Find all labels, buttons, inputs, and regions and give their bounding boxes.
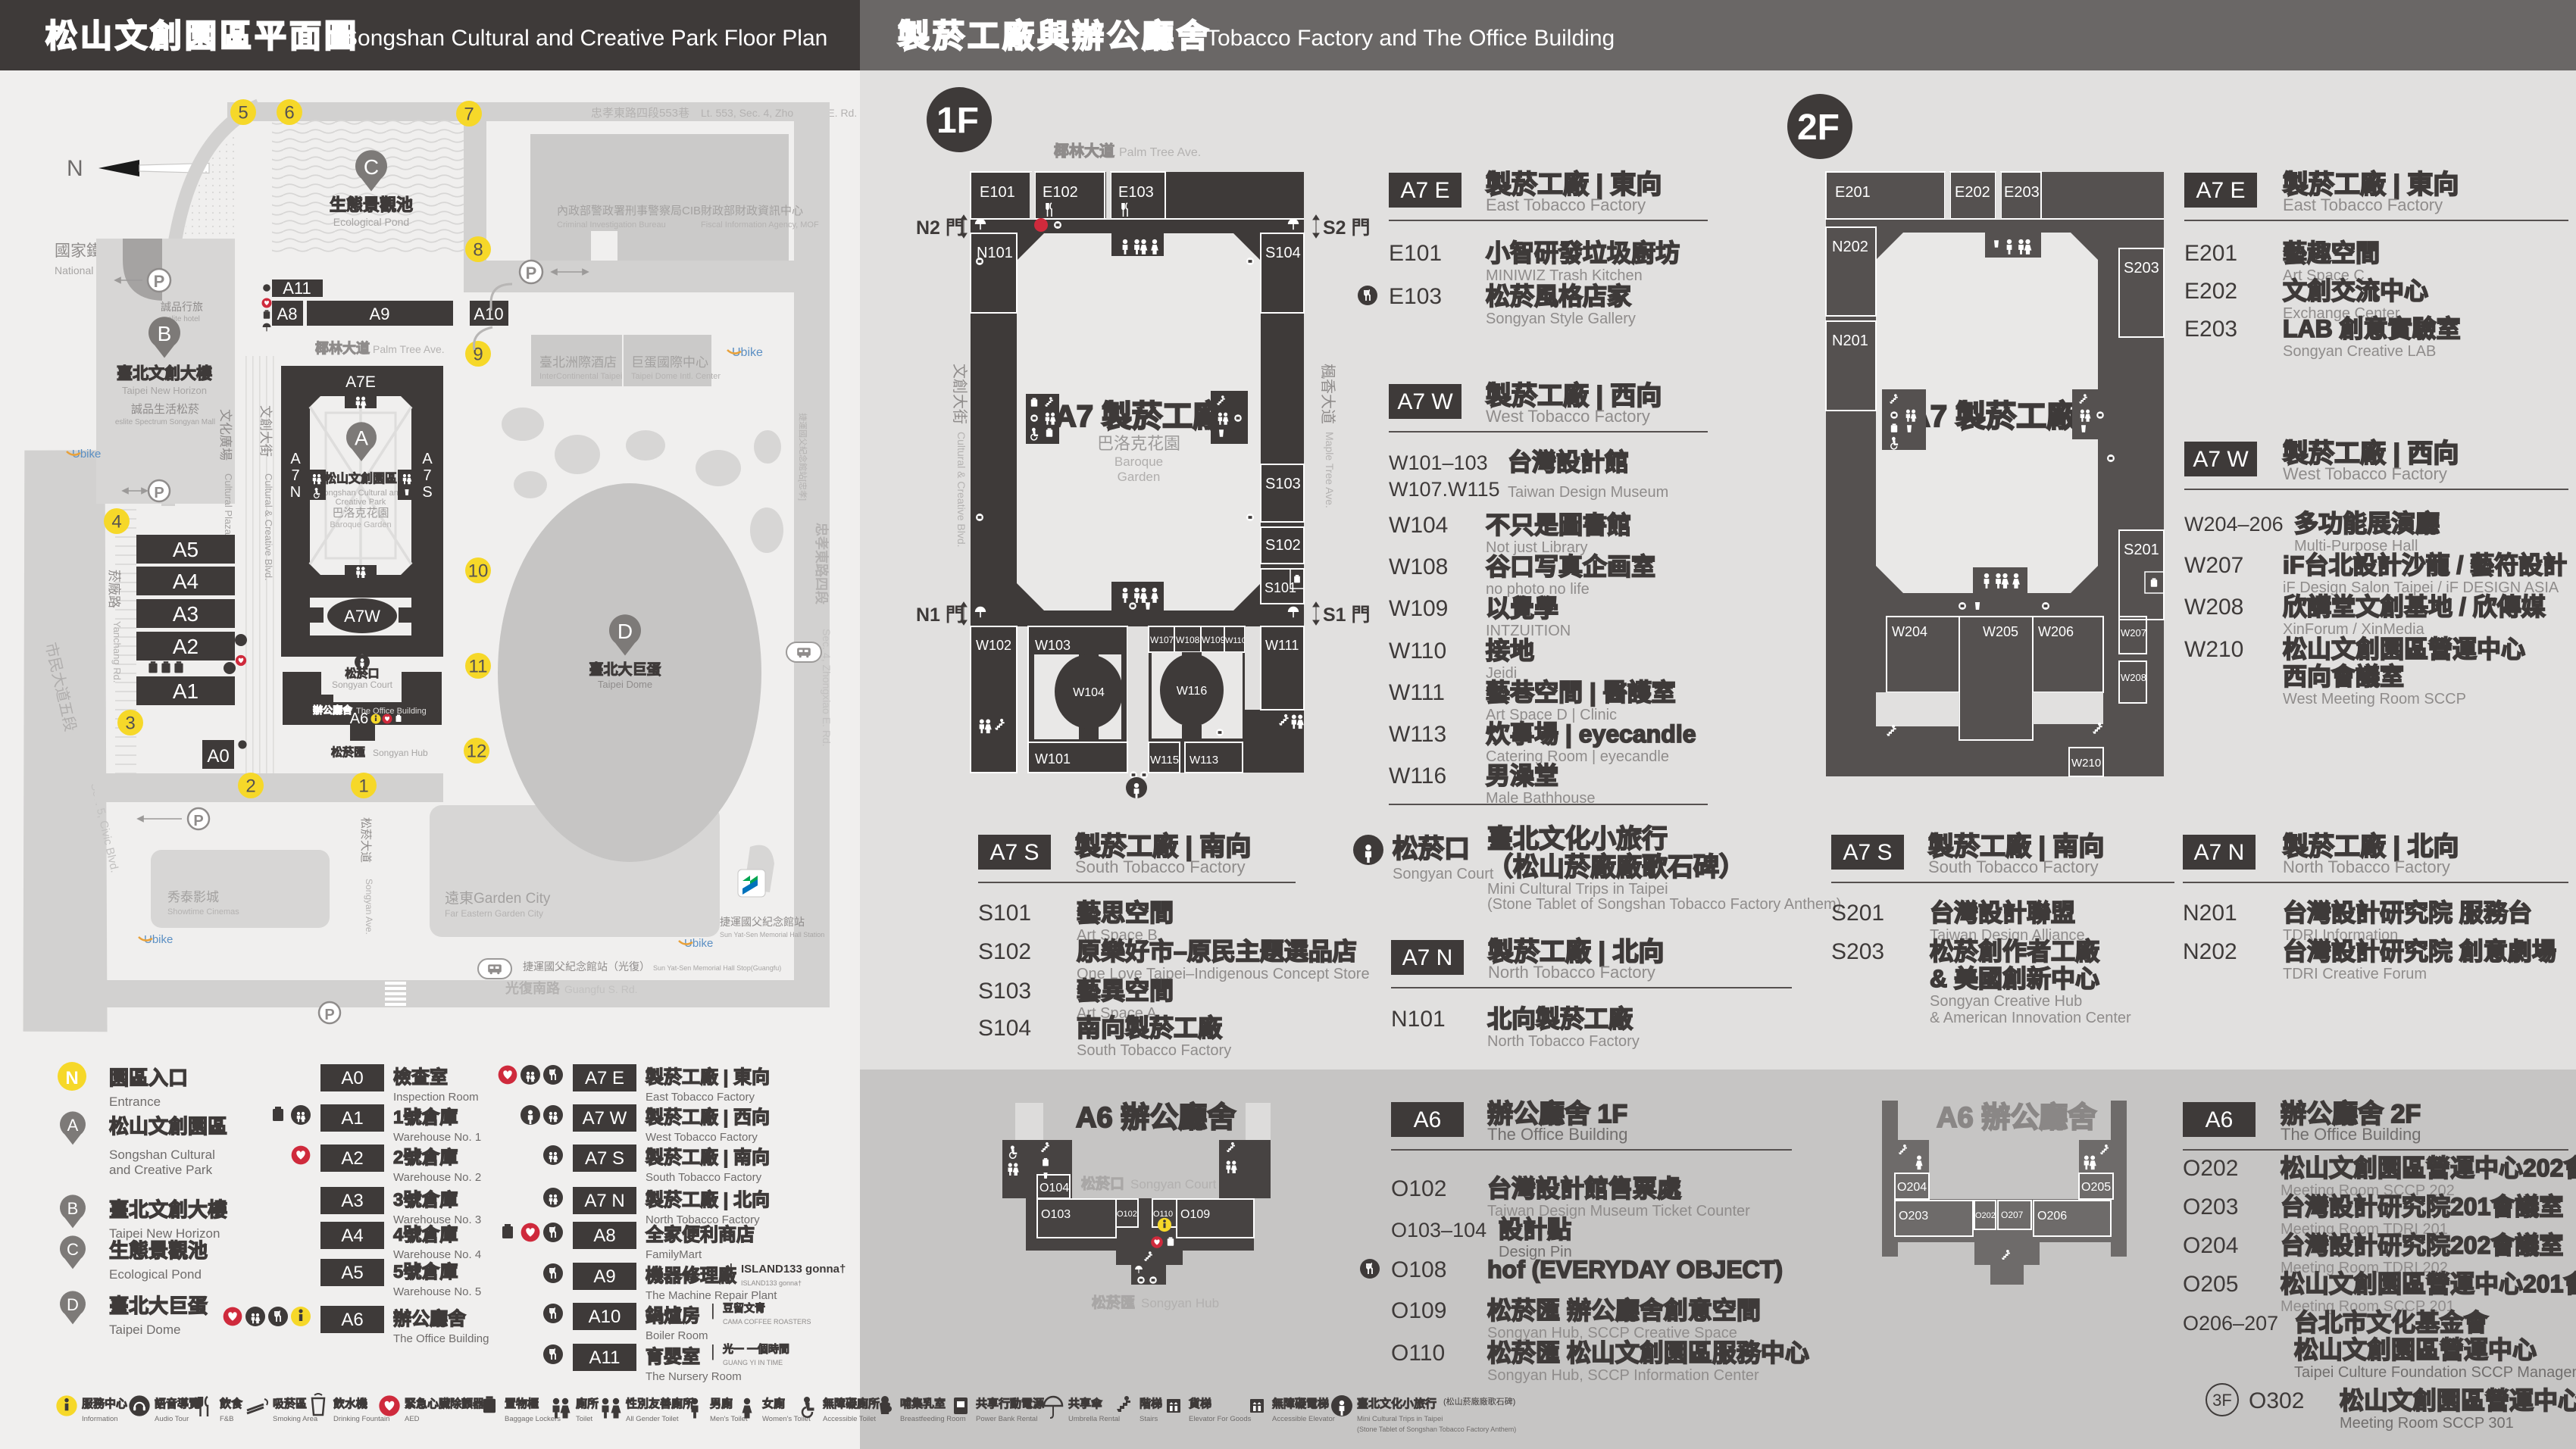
svg-text:台灣設計館: 台灣設計館 (1508, 448, 1629, 476)
svg-text:南向製菸工廠: 南向製菸工廠 (1077, 1014, 1222, 1041)
svg-text:O108: O108 (1391, 1257, 1446, 1282)
svg-text:N2 門: N2 門 (916, 217, 964, 239)
svg-text:Songyan Creative LAB: Songyan Creative LAB (2283, 343, 2436, 360)
svg-text:Sun Yat-Sen Memorial Hall Stat: Sun Yat-Sen Memorial Hall Station (720, 931, 824, 938)
svg-text:內政部警政署刑事警察局CIB: 內政部警政署刑事警察局CIB (557, 204, 701, 217)
svg-text:S2 門: S2 門 (1323, 217, 1371, 239)
svg-text:7: 7 (464, 104, 474, 124)
svg-text:A5: A5 (173, 538, 199, 561)
svg-text:West Tobacco Factory: West Tobacco Factory (1486, 407, 1650, 426)
svg-text:W206: W206 (2038, 624, 2074, 639)
svg-text:C: C (67, 1240, 79, 1259)
svg-text:A7W: A7W (344, 607, 380, 626)
svg-text:巴洛克花園: 巴洛克花園 (1097, 434, 1180, 453)
svg-text:A0: A0 (341, 1068, 363, 1088)
svg-text:語音導覽: 語音導覽 (155, 1397, 200, 1410)
svg-text:O202: O202 (2183, 1156, 2238, 1181)
svg-text:A7 W: A7 W (1397, 389, 1453, 414)
svg-text:A9: A9 (593, 1266, 615, 1287)
svg-text:O206: O206 (2037, 1210, 2067, 1223)
svg-text:E203: E203 (2184, 317, 2237, 342)
svg-text:Songyan Ave.: Songyan Ave. (364, 879, 374, 935)
svg-text:Inspection Room: Inspection Room (393, 1091, 479, 1104)
svg-text:Maple Tree Ave.: Maple Tree Ave. (1324, 432, 1336, 508)
svg-text:O103: O103 (1041, 1208, 1071, 1221)
svg-text:O110: O110 (1153, 1210, 1173, 1219)
svg-text:O204: O204 (2183, 1233, 2238, 1258)
svg-text:O102: O102 (1391, 1176, 1446, 1201)
svg-text:N: N (67, 156, 83, 181)
svg-text:The Office Building: The Office Building (2281, 1125, 2421, 1144)
svg-text:|: | (711, 1301, 715, 1319)
svg-text:楓香大道: 楓香大道 (1319, 364, 1336, 424)
svg-text:A5: A5 (341, 1263, 363, 1283)
svg-text:and Creative Park: and Creative Park (109, 1163, 213, 1177)
svg-text:全家便利商店: 全家便利商店 (645, 1224, 755, 1245)
svg-text:階梯: 階梯 (1140, 1397, 1162, 1410)
svg-text:North Tobacco Factory: North Tobacco Factory (2283, 857, 2450, 876)
svg-text:Songyan Creative Hub: Songyan Creative Hub (1930, 993, 2082, 1010)
svg-text:女廁: 女廁 (762, 1397, 785, 1410)
svg-text:A: A (422, 451, 433, 467)
svg-text:Garden: Garden (1118, 470, 1161, 484)
svg-text:E103: E103 (1389, 284, 1442, 309)
svg-text:臺北文化小旅行: 臺北文化小旅行 (1487, 825, 1668, 854)
svg-text:E103: E103 (1118, 184, 1154, 201)
svg-text:W109: W109 (1389, 596, 1448, 621)
svg-text:A3: A3 (173, 602, 199, 626)
svg-text:P: P (193, 813, 203, 829)
svg-text:松菸口: 松菸口 (1393, 835, 1470, 863)
svg-text:11: 11 (469, 656, 488, 676)
svg-text:無障礙電梯: 無障礙電梯 (1272, 1397, 1329, 1410)
svg-text:A4: A4 (173, 570, 199, 593)
svg-text:W108: W108 (1389, 554, 1448, 579)
svg-text:Songyan Court: Songyan Court (1393, 866, 1494, 882)
svg-text:Accessible Toilet: Accessible Toilet (823, 1415, 876, 1423)
svg-text:椰林大道: 椰林大道 (315, 340, 370, 356)
svg-text:文創交流中心: 文創交流中心 (2283, 277, 2428, 304)
svg-text:Breastfeeding Room: Breastfeeding Room (900, 1415, 966, 1423)
svg-text:4: 4 (111, 511, 121, 532)
svg-text:Taipei Dome: Taipei Dome (109, 1323, 181, 1337)
svg-text:菸廠路: 菸廠路 (107, 570, 122, 608)
svg-text:台北市文化基金會: 台北市文化基金會 (2294, 1309, 2489, 1336)
svg-text:巴洛克花園: 巴洛克花園 (332, 507, 389, 520)
svg-text:松山文創園區營運中心301會議室: 松山文創園區營運中心301會議室 (2340, 1387, 2576, 1414)
svg-text:10: 10 (468, 561, 489, 581)
svg-text:Tobacco Factory and The Office: Tobacco Factory and The Office Building (1206, 26, 1615, 51)
svg-text:A6: A6 (341, 1310, 363, 1330)
svg-text:N1 門: N1 門 (916, 604, 964, 626)
svg-text:臺北大巨蛋: 臺北大巨蛋 (109, 1294, 208, 1317)
svg-text:A6: A6 (350, 710, 368, 727)
svg-text:Taipei New Horizon: Taipei New Horizon (122, 385, 207, 396)
svg-text:O109: O109 (1180, 1208, 1210, 1221)
svg-text:製菸工廠與辦公廳舍: 製菸工廠與辦公廳舍 (898, 18, 1211, 54)
svg-text:A1: A1 (173, 679, 199, 703)
svg-text:捷運國父紀念館站[忠孝]: 捷運國父紀念館站[忠孝] (798, 413, 808, 501)
svg-text:松菸匯: 松菸匯 (331, 745, 365, 759)
svg-text:P: P (526, 264, 537, 283)
svg-text:A7 E: A7 E (2196, 178, 2245, 203)
svg-text:欣講堂文創基地 / 欣傳媒: 欣講堂文創基地 / 欣傳媒 (2283, 593, 2546, 620)
svg-text:松山文創園區營運中心: 松山文創園區營運中心 (2283, 635, 2525, 663)
svg-text:South Tobacco Factory: South Tobacco Factory (1075, 857, 1246, 876)
svg-text:A10: A10 (474, 304, 503, 323)
svg-text:Umbrella Rental: Umbrella Rental (1068, 1415, 1120, 1423)
svg-text:D: D (67, 1295, 79, 1314)
svg-text:育嬰室: 育嬰室 (646, 1346, 700, 1367)
svg-text:Information: Information (82, 1415, 118, 1423)
svg-text:無障礙廁所: 無障礙廁所 (823, 1397, 880, 1410)
svg-text:E201: E201 (1835, 184, 1871, 201)
svg-text:機器修理廠: 機器修理廠 (646, 1265, 737, 1286)
svg-text:A: A (355, 427, 368, 450)
svg-text:O202: O202 (1975, 1211, 1996, 1220)
svg-text:Elevator For Goods: Elevator For Goods (1189, 1415, 1252, 1423)
svg-text:藝巷空間 | 醫護室: 藝巷空間 | 醫護室 (1486, 679, 1676, 706)
svg-text:W210: W210 (2184, 637, 2243, 662)
svg-text:P: P (154, 272, 165, 291)
svg-text:S: S (422, 484, 432, 501)
svg-text:(松山菸廠廠歌石碑): (松山菸廠廠歌石碑) (1443, 1396, 1515, 1407)
svg-text:O205: O205 (2183, 1272, 2238, 1297)
svg-text:3號倉庫: 3號倉庫 (393, 1189, 458, 1210)
svg-text:8: 8 (473, 239, 483, 260)
svg-text:松菸風格店家: 松菸風格店家 (1486, 283, 1631, 310)
svg-text:台灣設計研究院 創意劇場: 台灣設計研究院 創意劇場 (2283, 938, 2556, 965)
svg-text:藝思空間: 藝思空間 (1077, 899, 1174, 926)
svg-text:O103–104: O103–104 (1391, 1219, 1487, 1241)
svg-text:Songshan Cultural and: Songshan Cultural and (318, 489, 403, 498)
svg-text:iF台北設計沙龍 / 藝符設計: iF台北設計沙龍 / 藝符設計 (2283, 551, 2567, 579)
svg-text:West Tobacco Factory: West Tobacco Factory (646, 1131, 758, 1144)
svg-text:& American Innovation Center: & American Innovation Center (1930, 1010, 2131, 1026)
svg-text:Mini Cultural Trips in Taipei: Mini Cultural Trips in Taipei (1357, 1415, 1443, 1423)
svg-text:Stairs: Stairs (1140, 1415, 1158, 1423)
svg-text:園區入口: 園區入口 (109, 1066, 188, 1089)
svg-text:E202: E202 (1955, 184, 1990, 201)
svg-text:Accessible Elevator: Accessible Elevator (1272, 1415, 1335, 1423)
svg-text:S103: S103 (978, 979, 1031, 1004)
svg-text:O204: O204 (1897, 1181, 1927, 1194)
svg-text:P: P (324, 1007, 334, 1023)
svg-text:W109: W109 (1202, 635, 1226, 645)
svg-text:O104: O104 (1039, 1182, 1069, 1194)
svg-text:Taipei Dome: Taipei Dome (598, 679, 652, 690)
svg-text:臺北洲際酒店: 臺北洲際酒店 (539, 355, 617, 370)
svg-text:生態景觀池: 生態景觀池 (330, 195, 413, 214)
svg-text:S103: S103 (1265, 476, 1301, 492)
svg-text:Baggage Lockers: Baggage Lockers (505, 1415, 561, 1423)
svg-text:S203: S203 (1831, 939, 1884, 964)
svg-text:A7 N: A7 N (584, 1191, 624, 1211)
svg-text:N: N (290, 484, 301, 501)
svg-text:巨蛋國際中心: 巨蛋國際中心 (631, 355, 708, 370)
svg-text:W204–206: W204–206 (2184, 513, 2284, 536)
svg-text:A7 W: A7 W (583, 1108, 627, 1129)
svg-text:飲水機: 飲水機 (333, 1397, 367, 1410)
svg-text:O205: O205 (2081, 1181, 2111, 1194)
svg-text:The Office Building: The Office Building (393, 1332, 489, 1345)
svg-text:O207: O207 (2001, 1210, 2024, 1220)
svg-text:生態景觀池: 生態景觀池 (109, 1239, 208, 1262)
svg-text:North Tobacco Factory: North Tobacco Factory (1488, 963, 1655, 982)
svg-text:S201: S201 (1831, 901, 1884, 926)
svg-text:廁所: 廁所 (576, 1397, 599, 1410)
svg-text:O203: O203 (2183, 1194, 2238, 1219)
svg-text:Cultural Plaza: Cultural Plaza (223, 473, 234, 536)
svg-text:Songyan Hub, SCCP Information: Songyan Hub, SCCP Information Center (1487, 1367, 1759, 1384)
svg-text:W116: W116 (1389, 764, 1446, 789)
svg-text:Lt. 553, Sec. 4, Zhongxiao E.: Lt. 553, Sec. 4, Zhongxiao E. Rd. (701, 107, 857, 119)
svg-text:A3: A3 (341, 1191, 363, 1211)
svg-text:W104: W104 (1073, 686, 1105, 699)
svg-text:W111: W111 (1265, 638, 1299, 653)
svg-text:3: 3 (125, 713, 135, 733)
svg-text:O102: O102 (1117, 1210, 1137, 1219)
svg-text:GUANG YI IN TIME: GUANG YI IN TIME (723, 1359, 783, 1366)
svg-text:松山文創園區: 松山文創園區 (109, 1115, 227, 1138)
svg-text:Baroque Garden: Baroque Garden (330, 520, 391, 529)
svg-text:7: 7 (423, 467, 431, 484)
svg-text:East Tobacco Factory: East Tobacco Factory (646, 1091, 755, 1104)
svg-text:台灣設計研究院 服務台: 台灣設計研究院 服務台 (2283, 899, 2532, 926)
svg-text:松菸大道: 松菸大道 (359, 817, 372, 863)
svg-text:光復南路: 光復南路 (505, 980, 561, 996)
svg-text:Warehouse No. 1: Warehouse No. 1 (393, 1131, 481, 1144)
svg-text:吸菸區: 吸菸區 (273, 1397, 307, 1410)
svg-text:A6 辦公廳舍: A6 辦公廳舍 (1937, 1102, 2096, 1134)
svg-text:服務中心: 服務中心 (82, 1397, 127, 1410)
svg-text:Boiler Room: Boiler Room (646, 1329, 708, 1342)
svg-text:接地: 接地 (1486, 637, 1534, 664)
svg-text:S102: S102 (978, 939, 1031, 964)
svg-text:O109: O109 (1391, 1298, 1446, 1323)
svg-text:Criminal Investigation Bureau: Criminal Investigation Bureau (557, 220, 666, 230)
svg-text:S101: S101 (978, 901, 1031, 926)
svg-text:松山文創園區平面圖: 松山文創園區平面圖 (45, 18, 359, 54)
svg-text:臺北大巨蛋: 臺北大巨蛋 (589, 660, 661, 678)
svg-text:北向製菸工廠: 北向製菸工廠 (1487, 1005, 1633, 1032)
svg-text:置物櫃: 置物櫃 (505, 1397, 539, 1410)
svg-text:檢查室: 檢查室 (393, 1066, 448, 1088)
svg-text:1F: 1F (936, 101, 979, 141)
svg-text:A7 W: A7 W (2193, 447, 2249, 472)
svg-text:A7 S: A7 S (1843, 840, 1892, 865)
svg-text:松山文創園區營運中心202會議室: 松山文創園區營運中心202會議室 (2281, 1154, 2576, 1182)
svg-text:Showtime Cinemas: Showtime Cinemas (167, 907, 239, 917)
svg-text:E201: E201 (2184, 241, 2237, 266)
svg-text:D: D (617, 620, 633, 643)
svg-text:W113: W113 (1389, 722, 1446, 747)
svg-text:小智研發垃圾廚坊: 小智研發垃圾廚坊 (1486, 239, 1680, 267)
svg-text:A0: A0 (207, 746, 229, 767)
svg-text:S102: S102 (1265, 537, 1301, 554)
svg-text:2號倉庫: 2號倉庫 (393, 1147, 458, 1168)
svg-text:製菸工廠 | 東向: 製菸工廠 | 東向 (646, 1066, 770, 1088)
svg-text:A8: A8 (593, 1226, 615, 1246)
svg-text:A6: A6 (1414, 1107, 1442, 1132)
svg-text:Songshan Cultural: Songshan Cultural (109, 1148, 215, 1162)
svg-text:C: C (364, 155, 379, 179)
svg-text:Cultural & Creative Blvd.: Cultural & Creative Blvd. (955, 432, 968, 548)
svg-text:辦公廳舍: 辦公廳舍 (313, 704, 353, 716)
svg-text:TDRI Creative Forum: TDRI Creative Forum (2283, 966, 2427, 982)
svg-text:A11: A11 (283, 279, 311, 298)
svg-text:哺集乳室: 哺集乳室 (900, 1397, 946, 1410)
svg-text:A7 製菸工廠: A7 製菸工廠 (1055, 399, 1223, 433)
svg-text:Ecological Pond: Ecological Pond (333, 216, 409, 228)
svg-text:P: P (154, 485, 164, 501)
svg-text:A: A (67, 1116, 79, 1135)
svg-text:藝異空間: 藝異空間 (1077, 977, 1174, 1004)
svg-text:N202: N202 (1832, 239, 1868, 255)
svg-text:A8: A8 (277, 304, 298, 323)
svg-text:Drinking Fountain: Drinking Fountain (333, 1415, 389, 1423)
svg-text:Audio Tour: Audio Tour (155, 1415, 189, 1423)
svg-text:W116: W116 (1177, 685, 1208, 698)
svg-text:InterContinental Taipei: InterContinental Taipei (539, 372, 622, 381)
svg-text:W204: W204 (1892, 624, 1927, 639)
svg-text:西向會議室: 西向會議室 (2283, 663, 2404, 690)
svg-text:W207: W207 (2184, 553, 2243, 578)
svg-text:S101: S101 (1265, 580, 1296, 595)
svg-text:松菸匯 松山文創園區服務中心: 松菸匯 松山文創園區服務中心 (1487, 1339, 1809, 1366)
svg-text:捷運國父紀念館站: 捷運國父紀念館站 (720, 916, 805, 928)
svg-text:& 美國創新中心: & 美國創新中心 (1930, 965, 2099, 992)
svg-text:7: 7 (291, 467, 299, 484)
svg-text:A7 N: A7 N (2194, 840, 2245, 865)
svg-text:O110: O110 (1391, 1341, 1445, 1366)
svg-text:E101: E101 (1389, 241, 1442, 266)
svg-text:椰林大道: 椰林大道 (1054, 142, 1114, 160)
svg-text:W107: W107 (1150, 635, 1174, 645)
svg-text:Taipei Culture Foundation SCCP: Taipei Culture Foundation SCCP Managemen… (2294, 1364, 2576, 1381)
svg-text:6: 6 (284, 102, 294, 123)
svg-text:松山文創園區: 松山文創園區 (324, 471, 397, 486)
svg-text:松菸匯 辦公廳舍創意空間: 松菸匯 辦公廳舍創意空間 (1487, 1297, 1761, 1324)
svg-text:Cultural & Creative Blvd.: Cultural & Creative Blvd. (263, 473, 274, 581)
svg-text:文創大街: 文創大街 (951, 364, 968, 424)
svg-text:1: 1 (358, 776, 368, 796)
svg-text:1號倉庫: 1號倉庫 (393, 1107, 458, 1128)
svg-text:松山文創園區營運中心: 松山文創園區營運中心 (2294, 1336, 2537, 1363)
svg-text:誠品行旅: 誠品行旅 (161, 301, 203, 313)
svg-text:Men's Toilet: Men's Toilet (710, 1415, 748, 1423)
svg-text:財政部財政資訊中心: 財政部財政資訊中心 (701, 205, 803, 217)
svg-text:West Meeting Room SCCP: West Meeting Room SCCP (2283, 691, 2466, 707)
svg-text:4號倉庫: 4號倉庫 (393, 1224, 458, 1245)
svg-text:W110: W110 (1225, 636, 1246, 645)
svg-text:W207: W207 (2121, 627, 2146, 639)
svg-text:文化廣場: 文化廣場 (218, 409, 233, 461)
svg-text:W102: W102 (976, 638, 1011, 653)
svg-text:Taipei Dome Intl. Center: Taipei Dome Intl. Center (631, 372, 721, 381)
svg-text:A7 製菸工廠: A7 製菸工廠 (1909, 399, 2077, 433)
svg-text:AED: AED (405, 1415, 420, 1423)
svg-text:Ecological Pond: Ecological Pond (109, 1267, 202, 1282)
svg-text:文創大街: 文創大街 (258, 405, 273, 457)
svg-text:Songyan Style Gallery: Songyan Style Gallery (1486, 311, 1636, 327)
svg-text:Sun Yat-Sen Memorial Hall Stop: Sun Yat-Sen Memorial Hall Stop(Guangfu) (653, 964, 781, 972)
svg-text:松菸口: 松菸口 (345, 667, 379, 680)
svg-text:FamilyMart: FamilyMart (646, 1248, 702, 1261)
svg-text:Songyan Hub: Songyan Hub (1141, 1296, 1219, 1310)
svg-text:設計點: 設計點 (1499, 1216, 1571, 1243)
svg-text:捷運國父紀念館站（光復）: 捷運國父紀念館站（光復） (523, 960, 650, 973)
svg-text:A7 S: A7 S (585, 1148, 624, 1169)
svg-text:S104: S104 (1265, 245, 1301, 261)
svg-text:Smoking Area: Smoking Area (273, 1415, 318, 1423)
svg-text:MINIWIZ Trash Kitchen: MINIWIZ Trash Kitchen (1486, 267, 1643, 284)
svg-text:A7 S: A7 S (989, 840, 1039, 865)
svg-text:（松山菸廠廠歌石碑）: （松山菸廠廠歌石碑） (1487, 852, 1745, 882)
svg-text:A6: A6 (2206, 1107, 2234, 1132)
svg-text:South Tobacco Factory: South Tobacco Factory (646, 1171, 762, 1184)
svg-text:誠品生活松菸: 誠品生活松菸 (131, 403, 199, 416)
svg-text:光一 一個時間: 光一 一個時間 (722, 1343, 789, 1355)
svg-text:A7 E: A7 E (585, 1068, 624, 1088)
svg-text:炊事場 | eyecandle: 炊事場 | eyecandle (1486, 720, 1696, 748)
svg-text:Songyan Court: Songyan Court (1130, 1177, 1217, 1191)
svg-text:共享傘: 共享傘 (1068, 1397, 1103, 1410)
svg-text:E101: E101 (980, 184, 1015, 201)
svg-text:The Nursery Room: The Nursery Room (646, 1370, 742, 1383)
svg-text:2: 2 (245, 776, 255, 796)
svg-text:Warehouse No. 2: Warehouse No. 2 (393, 1171, 481, 1184)
svg-text:W208: W208 (2184, 595, 2243, 620)
svg-text:辦公廳舍: 辦公廳舍 (393, 1308, 467, 1329)
svg-text:W113: W113 (1190, 754, 1218, 767)
svg-text:East Tobacco Factory: East Tobacco Factory (1486, 195, 1646, 214)
svg-text:12: 12 (467, 741, 487, 761)
svg-text:臺北文創大樓: 臺北文創大樓 (117, 364, 212, 383)
svg-text:B: B (67, 1199, 79, 1218)
svg-text:W101–103: W101–103 (1389, 451, 1488, 474)
svg-text:The Office Building: The Office Building (1487, 1125, 1627, 1144)
svg-text:谷口写真企画室: 谷口写真企画室 (1486, 553, 1655, 580)
svg-text:W205: W205 (1983, 624, 2018, 639)
svg-text:O206–207: O206–207 (2183, 1312, 2278, 1335)
svg-text:East Tobacco Factory: East Tobacco Factory (2283, 195, 2443, 214)
svg-text:A6 辦公廳舍: A6 辦公廳舍 (1076, 1102, 1236, 1134)
svg-text:N201: N201 (2183, 901, 2237, 926)
svg-text:N201: N201 (1832, 333, 1868, 349)
svg-text:W208: W208 (2121, 672, 2146, 683)
svg-text:鍋爐房: 鍋爐房 (646, 1305, 700, 1326)
svg-text:Taiwan Design Museum: Taiwan Design Museum (1508, 484, 1668, 501)
svg-text:N101: N101 (1391, 1007, 1446, 1032)
svg-text:E203: E203 (2004, 184, 2040, 201)
svg-text:West Tobacco Factory: West Tobacco Factory (2283, 464, 2447, 483)
svg-text:W101: W101 (1035, 751, 1071, 767)
svg-text:|: | (711, 1341, 715, 1360)
svg-text:製菸工廠 | 南向: 製菸工廠 | 南向 (646, 1147, 770, 1168)
svg-text:2F: 2F (1797, 108, 1840, 148)
svg-text:S201: S201 (2124, 542, 2159, 558)
svg-text:O203: O203 (1899, 1210, 1928, 1223)
svg-text:F&B: F&B (220, 1415, 233, 1423)
svg-text:Mini Cultural Trips in Taipei: Mini Cultural Trips in Taipei (1487, 881, 1668, 898)
svg-text:飲食: 飲食 (219, 1397, 243, 1410)
svg-text:LAB 創意實驗室: LAB 創意實驗室 (2283, 315, 2461, 342)
svg-text:S1 門: S1 門 (1323, 604, 1371, 626)
svg-text:忠孝東路四段553巷: 忠孝東路四段553巷 (591, 107, 689, 120)
svg-text:A: A (290, 451, 301, 467)
svg-text:hof (EVERYDAY OBJECT): hof (EVERYDAY OBJECT) (1487, 1256, 1783, 1283)
